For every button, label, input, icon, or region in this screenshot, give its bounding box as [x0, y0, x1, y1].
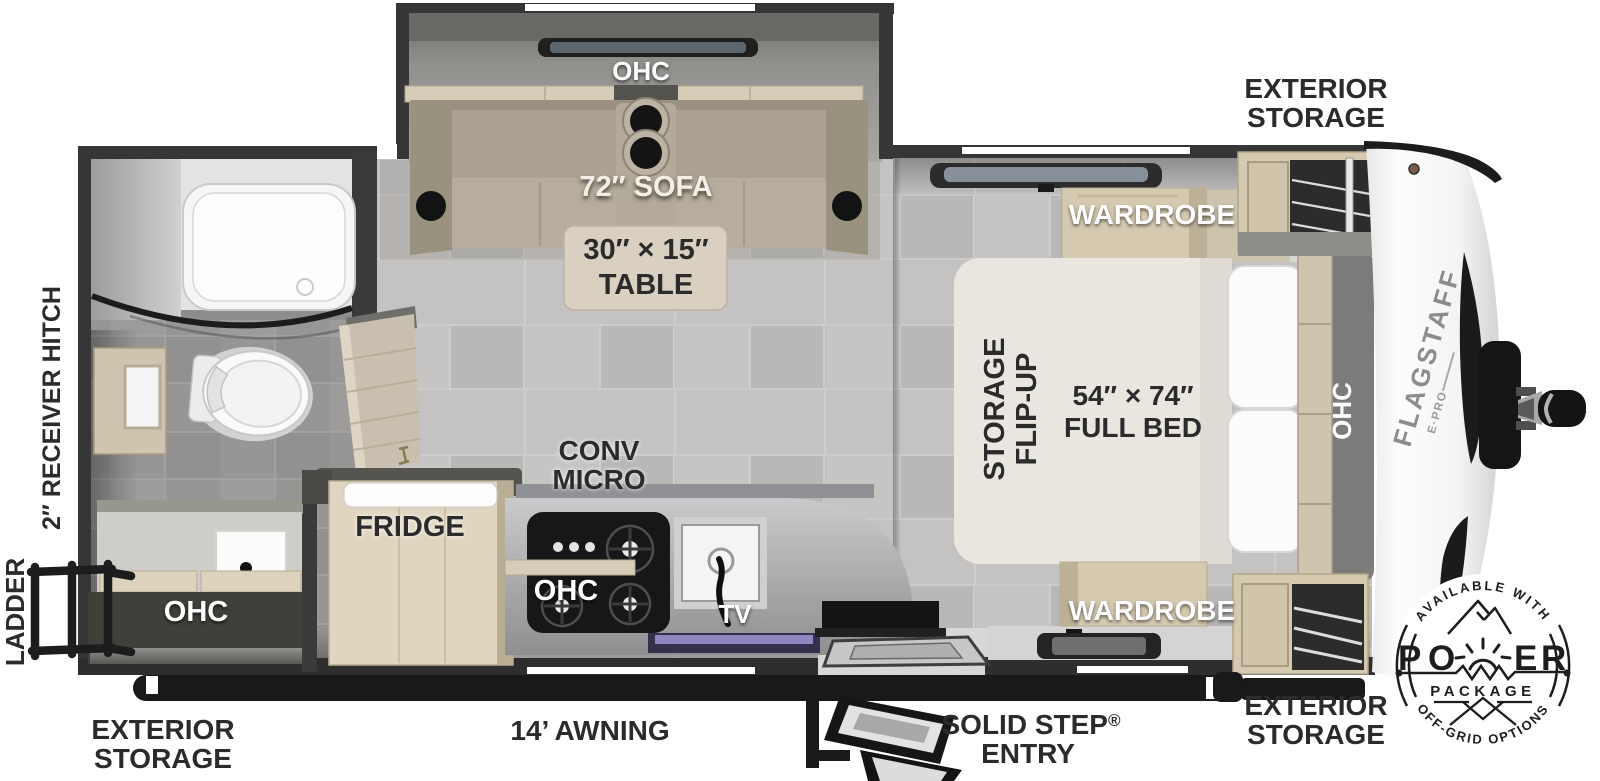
svg-text:FULL BED: FULL BED — [1064, 412, 1202, 443]
svg-text:CONV: CONV — [559, 435, 640, 466]
svg-text:2″ RECEIVER HITCH: 2″ RECEIVER HITCH — [38, 286, 66, 530]
svg-text:STORAGE: STORAGE — [1247, 719, 1385, 750]
svg-text:OHC: OHC — [164, 596, 229, 628]
svg-text:72″ SOFA: 72″ SOFA — [579, 171, 712, 203]
svg-text:14’ AWNING: 14’ AWNING — [510, 715, 669, 746]
svg-text:30″ × 15″: 30″ × 15″ — [583, 234, 708, 266]
svg-text:OHC: OHC — [612, 56, 670, 86]
svg-text:FRIDGE: FRIDGE — [355, 511, 465, 543]
svg-text:SOLID STEP®: SOLID STEP® — [942, 709, 1121, 740]
svg-text:EXTERIOR: EXTERIOR — [1244, 690, 1387, 721]
svg-text:OHC: OHC — [1327, 382, 1357, 440]
svg-text:FLIP-UP: FLIP-UP — [1011, 353, 1043, 466]
svg-text:EXTERIOR: EXTERIOR — [1244, 73, 1387, 104]
svg-text:MICRO: MICRO — [552, 464, 645, 495]
svg-text:TABLE: TABLE — [599, 269, 694, 301]
svg-text:TV: TV — [718, 599, 752, 629]
svg-text:STORAGE: STORAGE — [979, 338, 1011, 481]
svg-text:LADDER: LADDER — [0, 558, 30, 667]
svg-text:WARDROBE: WARDROBE — [1069, 595, 1235, 626]
svg-text:STORAGE: STORAGE — [1247, 102, 1385, 133]
svg-text:ENTRY: ENTRY — [981, 738, 1075, 769]
svg-text:EXTERIOR: EXTERIOR — [91, 714, 234, 745]
svg-text:54″ × 74″: 54″ × 74″ — [1072, 380, 1193, 411]
svg-text:WARDROBE: WARDROBE — [1069, 199, 1235, 230]
svg-text:STORAGE: STORAGE — [94, 743, 232, 774]
svg-text:OHC: OHC — [534, 575, 599, 607]
